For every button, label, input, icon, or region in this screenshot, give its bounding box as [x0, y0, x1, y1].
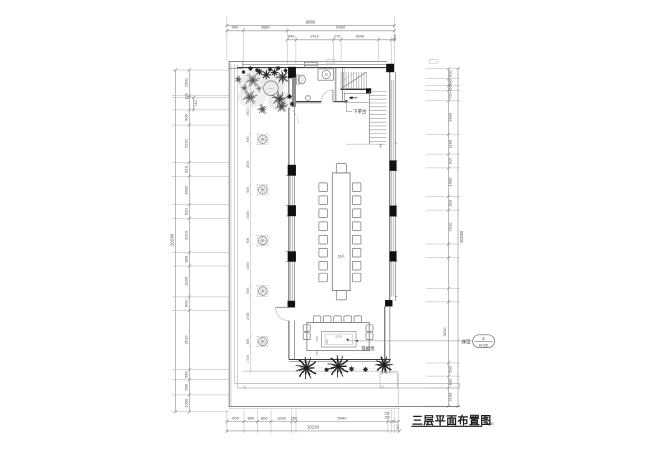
- svg-text:3510: 3510: [184, 335, 189, 345]
- svg-text:2400: 2400: [246, 312, 250, 320]
- svg-text:详见: 详见: [461, 338, 471, 345]
- svg-text:900: 900: [232, 415, 239, 420]
- svg-text:三层平面布置图: 三层平面布置图: [412, 413, 492, 427]
- svg-text:590: 590: [448, 365, 453, 372]
- svg-text:2010: 2010: [184, 230, 189, 240]
- svg-text:600: 600: [246, 288, 250, 294]
- svg-text:240: 240: [396, 424, 400, 430]
- svg-text:600: 600: [246, 238, 250, 244]
- svg-text:820: 820: [448, 199, 453, 206]
- svg-text:800: 800: [247, 415, 254, 420]
- svg-text:2400: 2400: [246, 161, 250, 169]
- svg-text:16人: 16人: [338, 254, 346, 259]
- svg-text:3510: 3510: [442, 327, 447, 337]
- svg-text:2680: 2680: [261, 25, 271, 30]
- svg-text:900: 900: [184, 113, 189, 120]
- svg-text:1680: 1680: [448, 177, 453, 187]
- svg-text:800: 800: [261, 415, 268, 420]
- svg-text:2410: 2410: [310, 35, 318, 39]
- svg-text:800: 800: [184, 255, 189, 262]
- svg-text:800: 800: [184, 299, 189, 306]
- svg-text:150: 150: [384, 415, 390, 419]
- svg-text:405: 405: [448, 78, 453, 85]
- svg-text:820: 820: [184, 207, 189, 214]
- svg-text:240: 240: [393, 34, 397, 40]
- svg-text:900: 900: [232, 25, 239, 30]
- svg-text:720: 720: [448, 92, 453, 99]
- svg-text:800: 800: [448, 378, 453, 385]
- svg-text:D-02: D-02: [479, 343, 488, 348]
- svg-text:1230: 1230: [277, 415, 287, 420]
- svg-text:2400: 2400: [246, 262, 250, 270]
- svg-text:250: 250: [291, 416, 297, 420]
- svg-text:600: 600: [325, 339, 329, 344]
- svg-text:5440: 5440: [338, 415, 348, 420]
- svg-text:1000: 1000: [184, 398, 189, 408]
- svg-text:740: 740: [194, 100, 198, 106]
- svg-text:120: 120: [184, 92, 189, 99]
- svg-text:10130: 10130: [307, 425, 320, 430]
- svg-text:600: 600: [448, 69, 453, 76]
- svg-text:9880: 9880: [306, 19, 316, 24]
- svg-text:1:100: 1:100: [484, 422, 494, 426]
- svg-text:810: 810: [184, 165, 189, 172]
- svg-text:900: 900: [184, 383, 189, 390]
- svg-text:745: 745: [315, 351, 319, 356]
- svg-text:1200: 1200: [315, 335, 319, 342]
- svg-text:1180: 1180: [448, 139, 453, 148]
- svg-text:2220: 2220: [184, 139, 189, 149]
- svg-text:295: 295: [448, 84, 453, 91]
- svg-text:1730: 1730: [246, 355, 250, 363]
- svg-text:600: 600: [246, 339, 250, 345]
- svg-text:3040: 3040: [356, 35, 364, 39]
- svg-text:1830: 1830: [184, 276, 189, 286]
- svg-text:600: 600: [246, 136, 250, 142]
- svg-text:2100: 2100: [335, 334, 342, 338]
- svg-text:1500: 1500: [184, 77, 189, 87]
- svg-text:815: 815: [448, 157, 453, 164]
- svg-text:640: 640: [288, 35, 294, 39]
- svg-text:20230: 20230: [459, 230, 464, 243]
- svg-text:20230: 20230: [170, 233, 175, 246]
- svg-text:1980: 1980: [448, 112, 453, 122]
- svg-text:2900: 2900: [246, 108, 250, 116]
- svg-text:2010: 2010: [448, 222, 453, 232]
- svg-text:下茶台: 下茶台: [353, 108, 367, 115]
- svg-text:590: 590: [184, 371, 189, 378]
- svg-text:铁板烧: 铁板烧: [362, 345, 376, 352]
- svg-text:6300: 6300: [336, 25, 346, 30]
- svg-text:1100: 1100: [448, 392, 453, 401]
- svg-text:下: 下: [379, 145, 383, 149]
- svg-text:1680: 1680: [184, 185, 189, 195]
- svg-text:2400: 2400: [246, 211, 250, 219]
- svg-text:600: 600: [246, 187, 250, 193]
- svg-text:170: 170: [334, 35, 340, 39]
